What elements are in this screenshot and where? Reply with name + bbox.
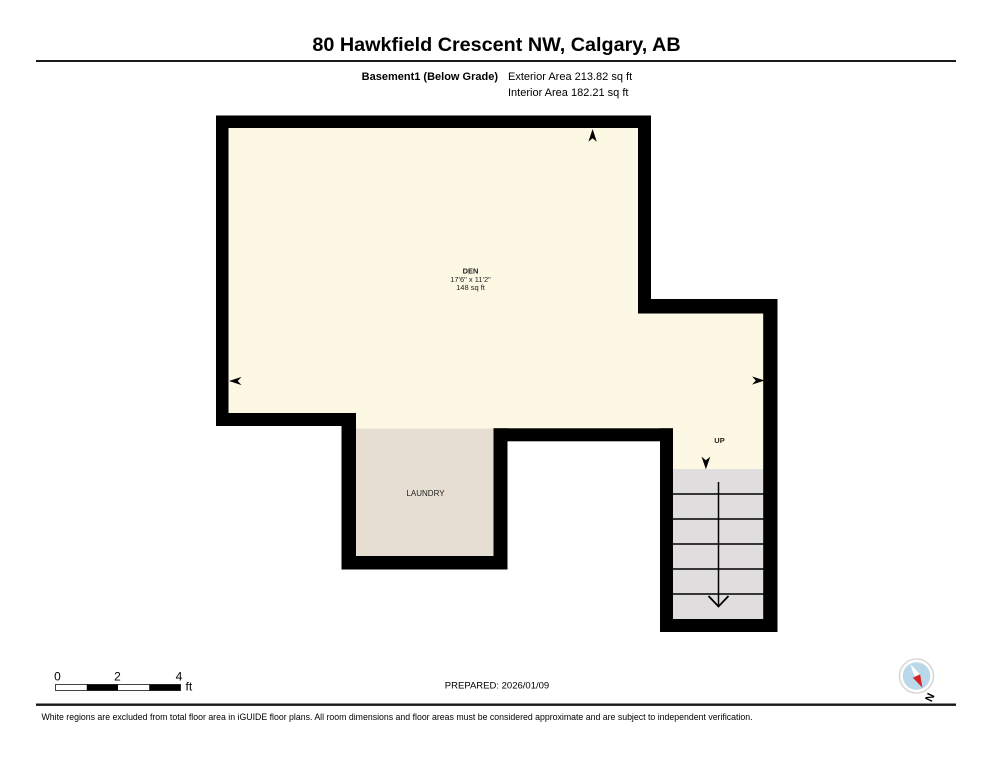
svg-text:4: 4 bbox=[176, 670, 183, 684]
svg-text:White regions are excluded fro: White regions are excluded from total fl… bbox=[42, 712, 753, 722]
svg-text:ft: ft bbox=[186, 680, 193, 694]
svg-text:148 sq ft: 148 sq ft bbox=[456, 283, 486, 292]
svg-text:2: 2 bbox=[114, 670, 121, 684]
svg-text:LAUNDRY: LAUNDRY bbox=[406, 489, 445, 498]
svg-text:0: 0 bbox=[54, 670, 61, 684]
svg-text:PREPARED: 2026/01/09: PREPARED: 2026/01/09 bbox=[445, 681, 549, 692]
svg-text:UP: UP bbox=[714, 436, 724, 445]
svg-text:N: N bbox=[922, 691, 936, 703]
